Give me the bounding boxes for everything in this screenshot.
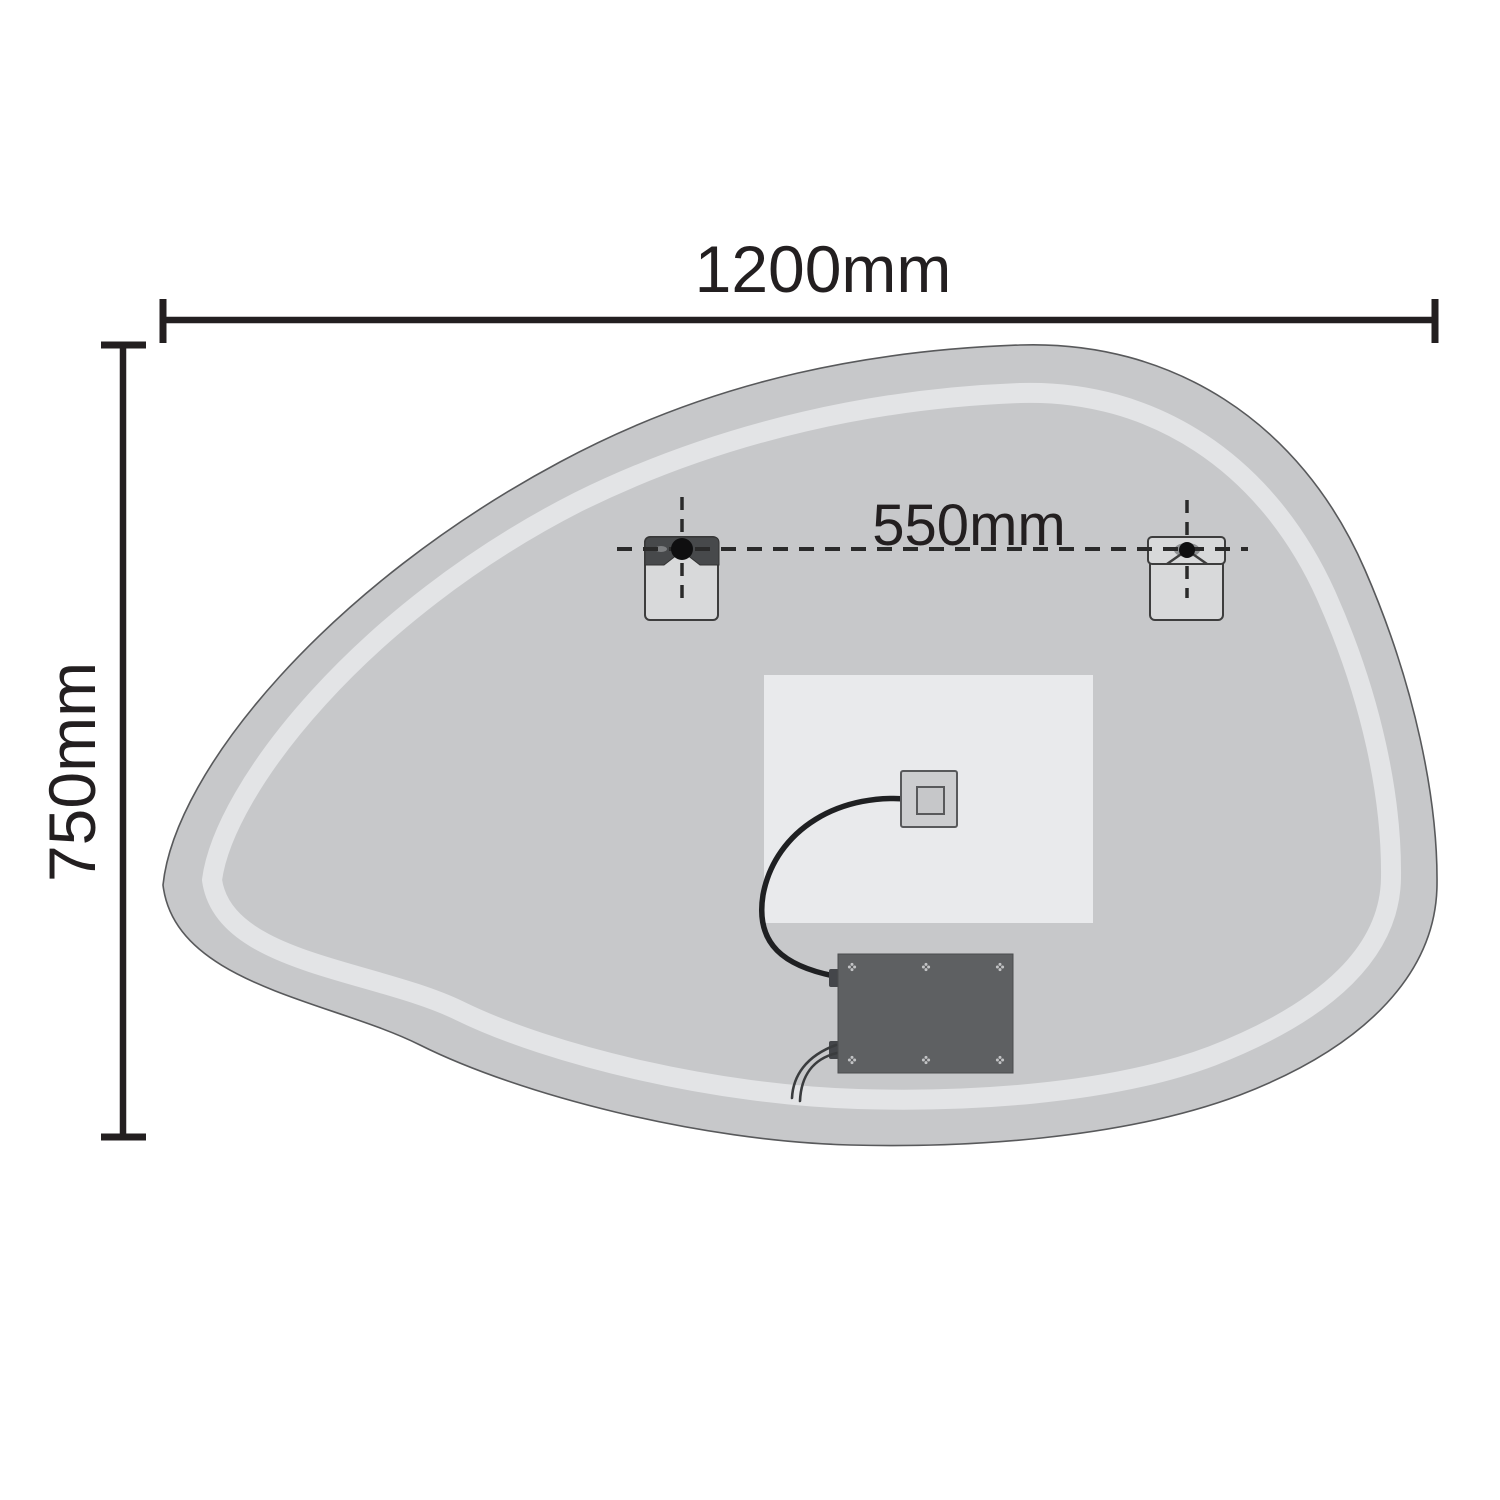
right-bracket-pin [1179, 542, 1195, 558]
diagram-svg: 550mm 1200mm 750mm [0, 0, 1500, 1500]
driver-box [838, 954, 1013, 1073]
junction-box-group [901, 771, 957, 827]
left-bracket-pin [671, 538, 693, 560]
bracket-spacing-label: 550mm [872, 493, 1065, 558]
width-dimension-label: 1200mm [695, 232, 952, 306]
height-dimension-label: 750mm [35, 662, 109, 882]
mirror-dimension-diagram: 550mm 1200mm 750mm [0, 0, 1500, 1500]
junction-box-inner [917, 787, 944, 814]
